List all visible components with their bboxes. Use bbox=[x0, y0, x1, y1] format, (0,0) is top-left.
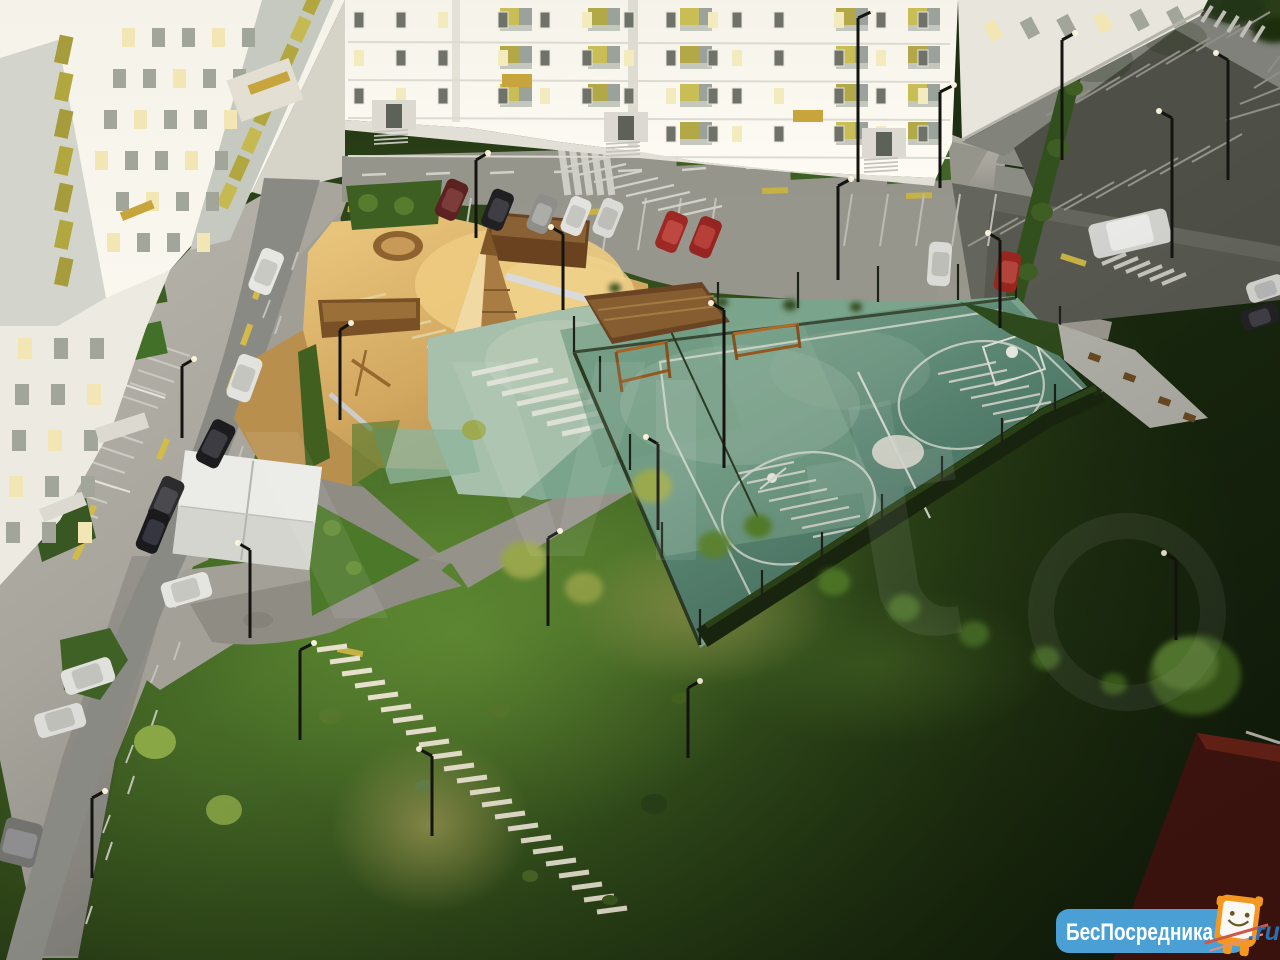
svg-text:.ru: .ru bbox=[1248, 918, 1280, 946]
svg-text:БесПосредника: БесПосредника bbox=[1066, 919, 1214, 946]
